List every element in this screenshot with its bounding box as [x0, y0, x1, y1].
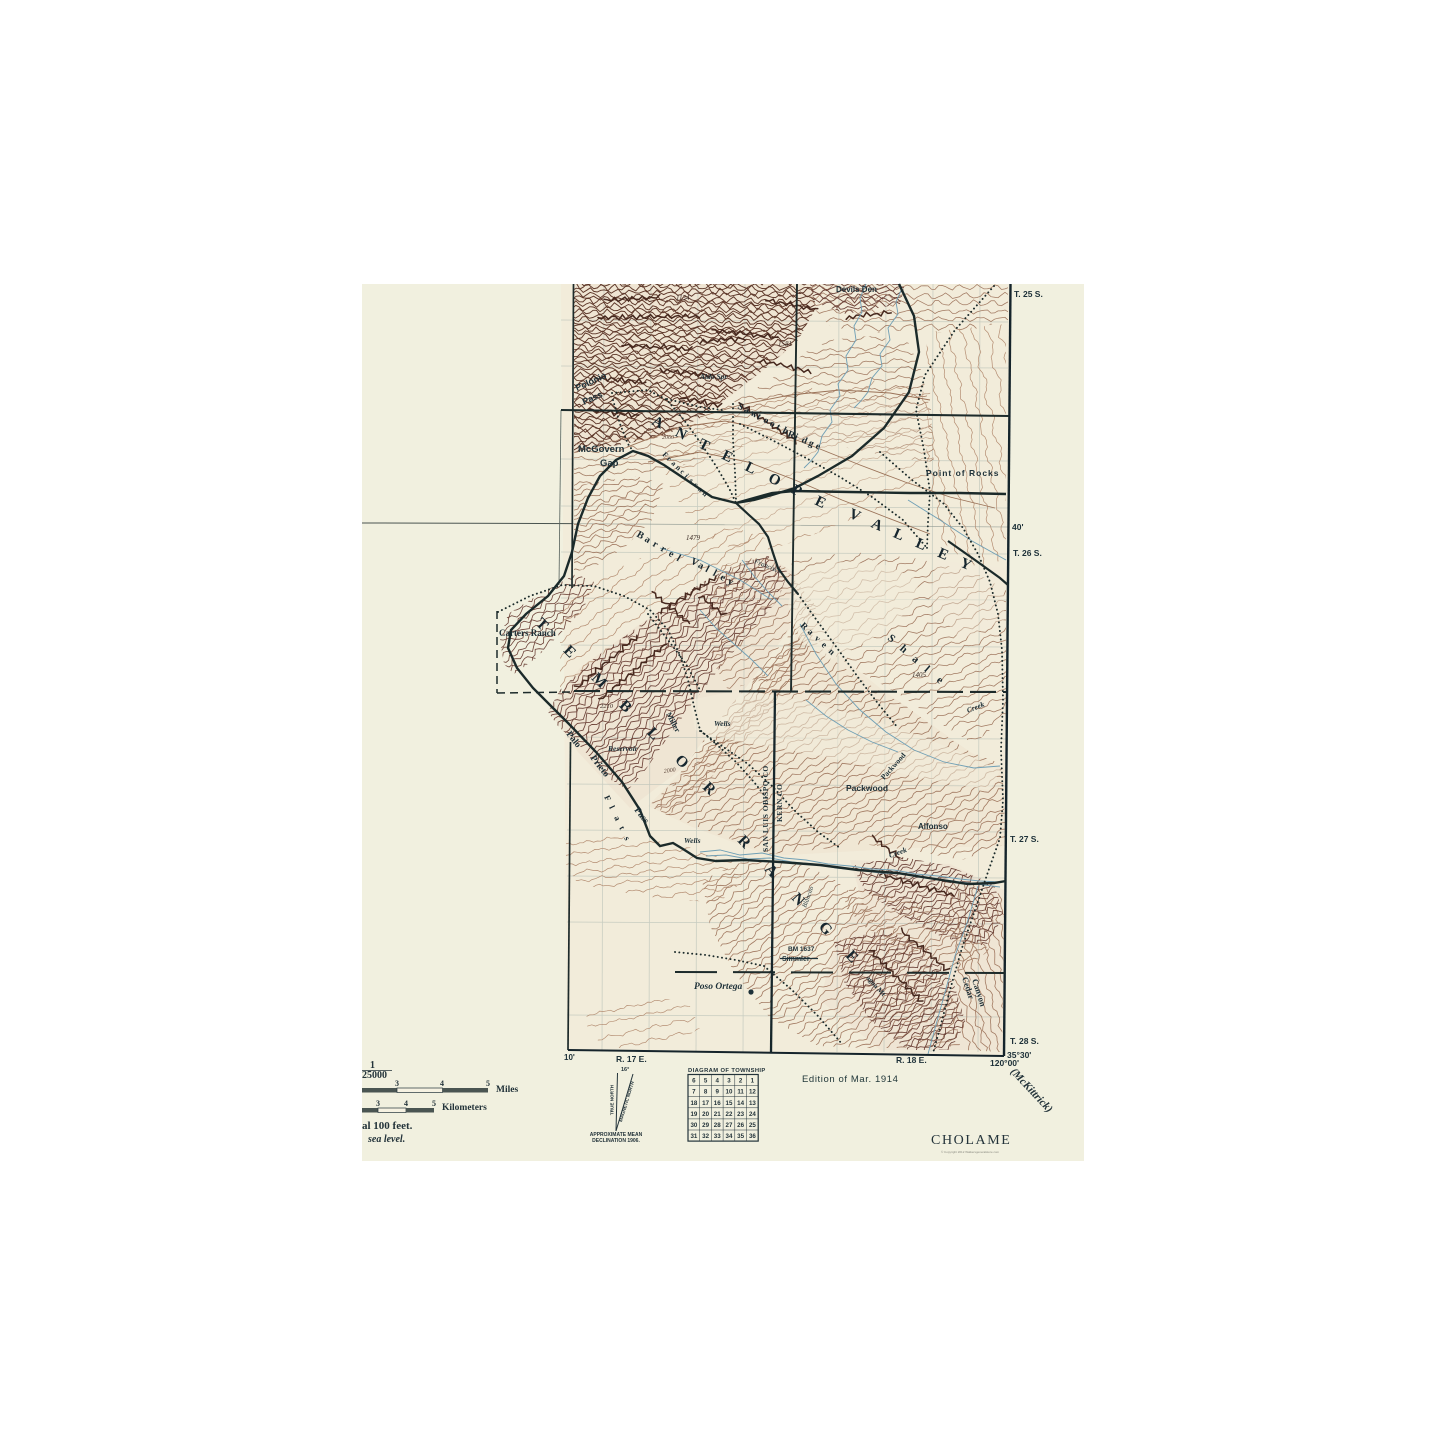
svg-text:Wells: Wells — [714, 719, 731, 728]
svg-text:29: 29 — [702, 1122, 709, 1129]
svg-text:32: 32 — [702, 1133, 709, 1140]
svg-text:DECLINATION 1906.: DECLINATION 1906. — [592, 1138, 640, 1144]
svg-text:T. 26 S.: T. 26 S. — [1013, 548, 1042, 558]
svg-text:20: 20 — [702, 1111, 709, 1118]
svg-text:1479: 1479 — [686, 534, 701, 542]
svg-text:T. 25 S.: T. 25 S. — [1014, 289, 1043, 299]
svg-text:Aido Spr: Aido Spr — [699, 372, 727, 381]
svg-text:25000: 25000 — [362, 1070, 387, 1081]
svg-text:3: 3 — [727, 1078, 731, 1085]
svg-text:30: 30 — [690, 1122, 697, 1129]
svg-text:21: 21 — [714, 1111, 721, 1118]
svg-text:3: 3 — [376, 1099, 380, 1108]
svg-text:34: 34 — [726, 1133, 733, 1140]
svg-text:sea level.: sea level. — [367, 1134, 405, 1145]
svg-text:T. 27 S.: T. 27 S. — [1010, 834, 1039, 844]
svg-text:Edition of Mar. 1914: Edition of Mar. 1914 — [802, 1074, 899, 1085]
svg-text:11: 11 — [737, 1089, 744, 1096]
svg-text:14: 14 — [737, 1100, 744, 1107]
svg-text:Carters Ranch: Carters Ranch — [499, 628, 556, 638]
svg-text:4: 4 — [440, 1079, 444, 1088]
svg-text:DIAGRAM OF TOWNSHIP: DIAGRAM OF TOWNSHIP — [688, 1068, 766, 1074]
svg-text:9: 9 — [715, 1089, 719, 1096]
svg-text:4: 4 — [404, 1099, 408, 1108]
svg-text:28: 28 — [714, 1122, 721, 1129]
svg-text:13: 13 — [749, 1100, 756, 1107]
svg-text:5: 5 — [486, 1079, 490, 1088]
svg-text:10: 10 — [726, 1089, 733, 1096]
svg-text:T. 28 S.: T. 28 S. — [1010, 1036, 1039, 1046]
svg-text:24: 24 — [749, 1111, 756, 1118]
svg-text:Packwood: Packwood — [846, 783, 888, 793]
svg-text:5: 5 — [704, 1078, 708, 1085]
svg-text:17: 17 — [702, 1100, 709, 1107]
svg-text:3: 3 — [395, 1079, 399, 1088]
svg-text:Miles: Miles — [496, 1085, 518, 1095]
svg-text:7: 7 — [692, 1089, 696, 1096]
svg-text:2210: 2210 — [600, 703, 614, 710]
svg-text:© Copyright 2012 Walkersgenera: © Copyright 2012 Walkersgeneralstore com — [941, 1150, 1000, 1154]
svg-text:R. 17 E.: R. 17 E. — [616, 1054, 647, 1064]
svg-text:27: 27 — [726, 1122, 733, 1129]
svg-text:Alfonso: Alfonso — [918, 822, 948, 831]
svg-text:18: 18 — [690, 1100, 697, 1107]
svg-text:19: 19 — [690, 1111, 697, 1118]
svg-text:Wells: Wells — [684, 836, 701, 845]
svg-text:BM 1637: BM 1637 — [788, 946, 815, 953]
svg-text:4: 4 — [715, 1078, 719, 1085]
svg-text:SAN LUIS OBISPO CO: SAN LUIS OBISPO CO — [761, 765, 770, 852]
svg-text:R. 18 E.: R. 18 E. — [896, 1055, 927, 1065]
svg-text:33: 33 — [714, 1133, 721, 1140]
svg-text:1: 1 — [751, 1078, 755, 1085]
svg-text:35: 35 — [737, 1133, 744, 1140]
svg-text:Simmler: Simmler — [782, 956, 810, 963]
svg-text:2: 2 — [739, 1078, 743, 1085]
svg-text:1581: 1581 — [778, 340, 792, 348]
svg-text:6: 6 — [692, 1078, 696, 1085]
svg-text:16°: 16° — [621, 1067, 629, 1073]
svg-text:12: 12 — [749, 1089, 756, 1096]
svg-text:Kilometers: Kilometers — [442, 1103, 487, 1113]
svg-text:Poso Ortega: Poso Ortega — [694, 982, 743, 992]
svg-text:CHOLAME: CHOLAME — [931, 1133, 1011, 1148]
svg-text:Devils Den: Devils Den — [836, 285, 877, 294]
svg-text:2060: 2060 — [662, 435, 674, 441]
svg-text:23: 23 — [737, 1111, 744, 1118]
svg-text:TRUE NORTH: TRUE NORTH — [610, 1084, 615, 1115]
svg-text:10': 10' — [564, 1053, 575, 1062]
svg-text:Gap: Gap — [600, 458, 619, 469]
svg-text:36: 36 — [749, 1133, 756, 1140]
svg-text:22: 22 — [726, 1111, 733, 1118]
svg-text:McGovern: McGovern — [578, 444, 625, 455]
svg-text:16: 16 — [714, 1100, 721, 1107]
svg-text:1405: 1405 — [912, 671, 927, 679]
svg-text:8: 8 — [704, 1089, 708, 1096]
svg-text:Reservoir: Reservoir — [607, 744, 638, 753]
svg-text:25: 25 — [749, 1122, 756, 1129]
svg-text:KERN CO: KERN CO — [775, 784, 784, 822]
svg-text:Point of Rocks: Point of Rocks — [926, 468, 1000, 478]
svg-text:1134: 1134 — [676, 294, 690, 302]
svg-text:26: 26 — [737, 1122, 744, 1129]
svg-text:5: 5 — [432, 1099, 436, 1108]
svg-text:31: 31 — [690, 1133, 697, 1140]
svg-text:15: 15 — [726, 1100, 733, 1107]
svg-text:al 100 feet.: al 100 feet. — [362, 1120, 413, 1132]
svg-text:40': 40' — [1012, 522, 1023, 532]
